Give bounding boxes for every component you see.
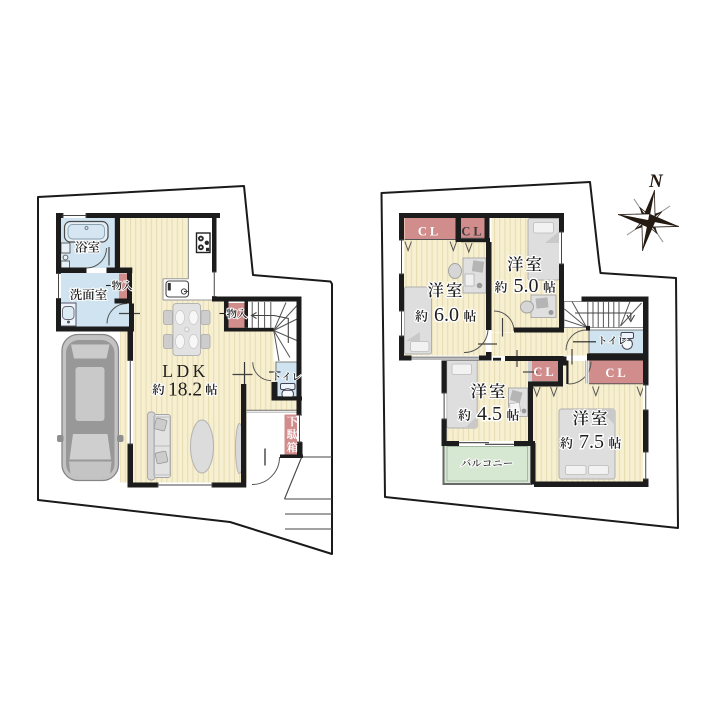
svg-text:CL: CL: [605, 366, 628, 380]
svg-text:CL: CL: [533, 365, 556, 379]
svg-text:18.2: 18.2: [168, 380, 202, 401]
svg-text:7.5: 7.5: [579, 431, 604, 453]
svg-text:CL: CL: [461, 225, 484, 239]
svg-text:LDK: LDK: [162, 361, 208, 381]
svg-text:6.0: 6.0: [434, 304, 459, 326]
svg-text:5.0: 5.0: [514, 275, 539, 297]
svg-text:CL: CL: [418, 225, 441, 239]
svg-text:4.5: 4.5: [477, 403, 502, 425]
